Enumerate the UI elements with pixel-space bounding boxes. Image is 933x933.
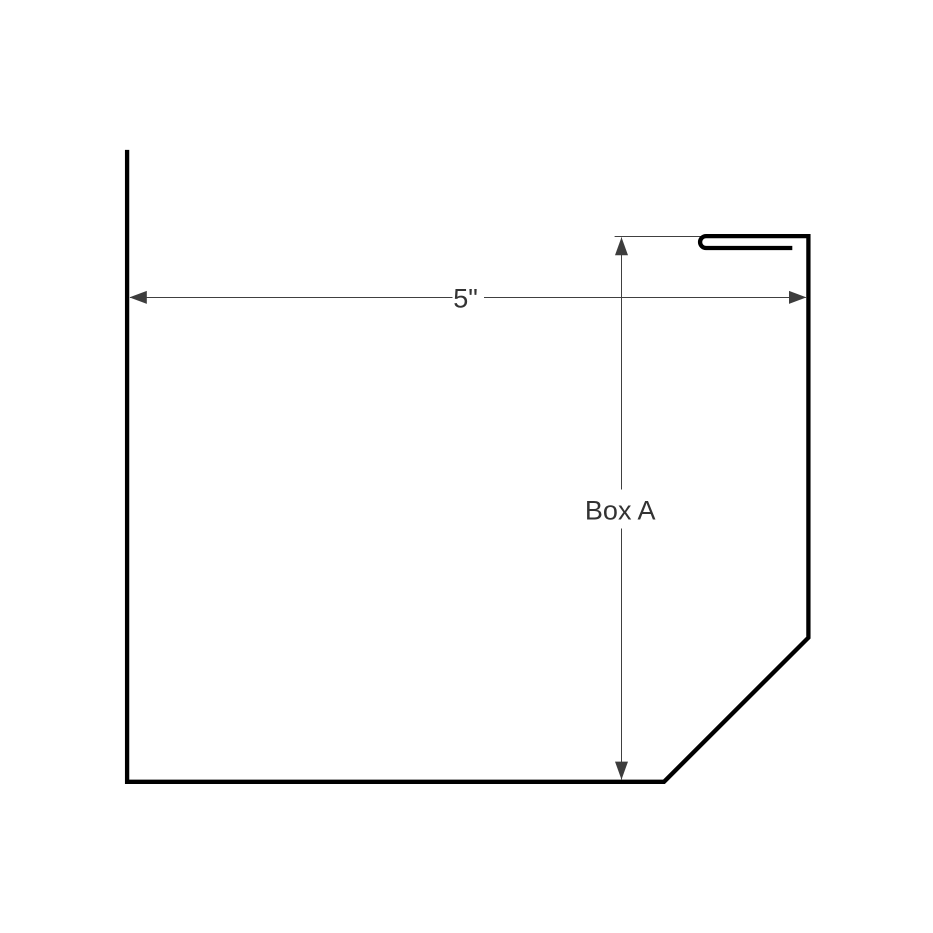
svg-text:5": 5" bbox=[453, 284, 478, 314]
svg-text:Box A: Box A bbox=[585, 495, 656, 525]
